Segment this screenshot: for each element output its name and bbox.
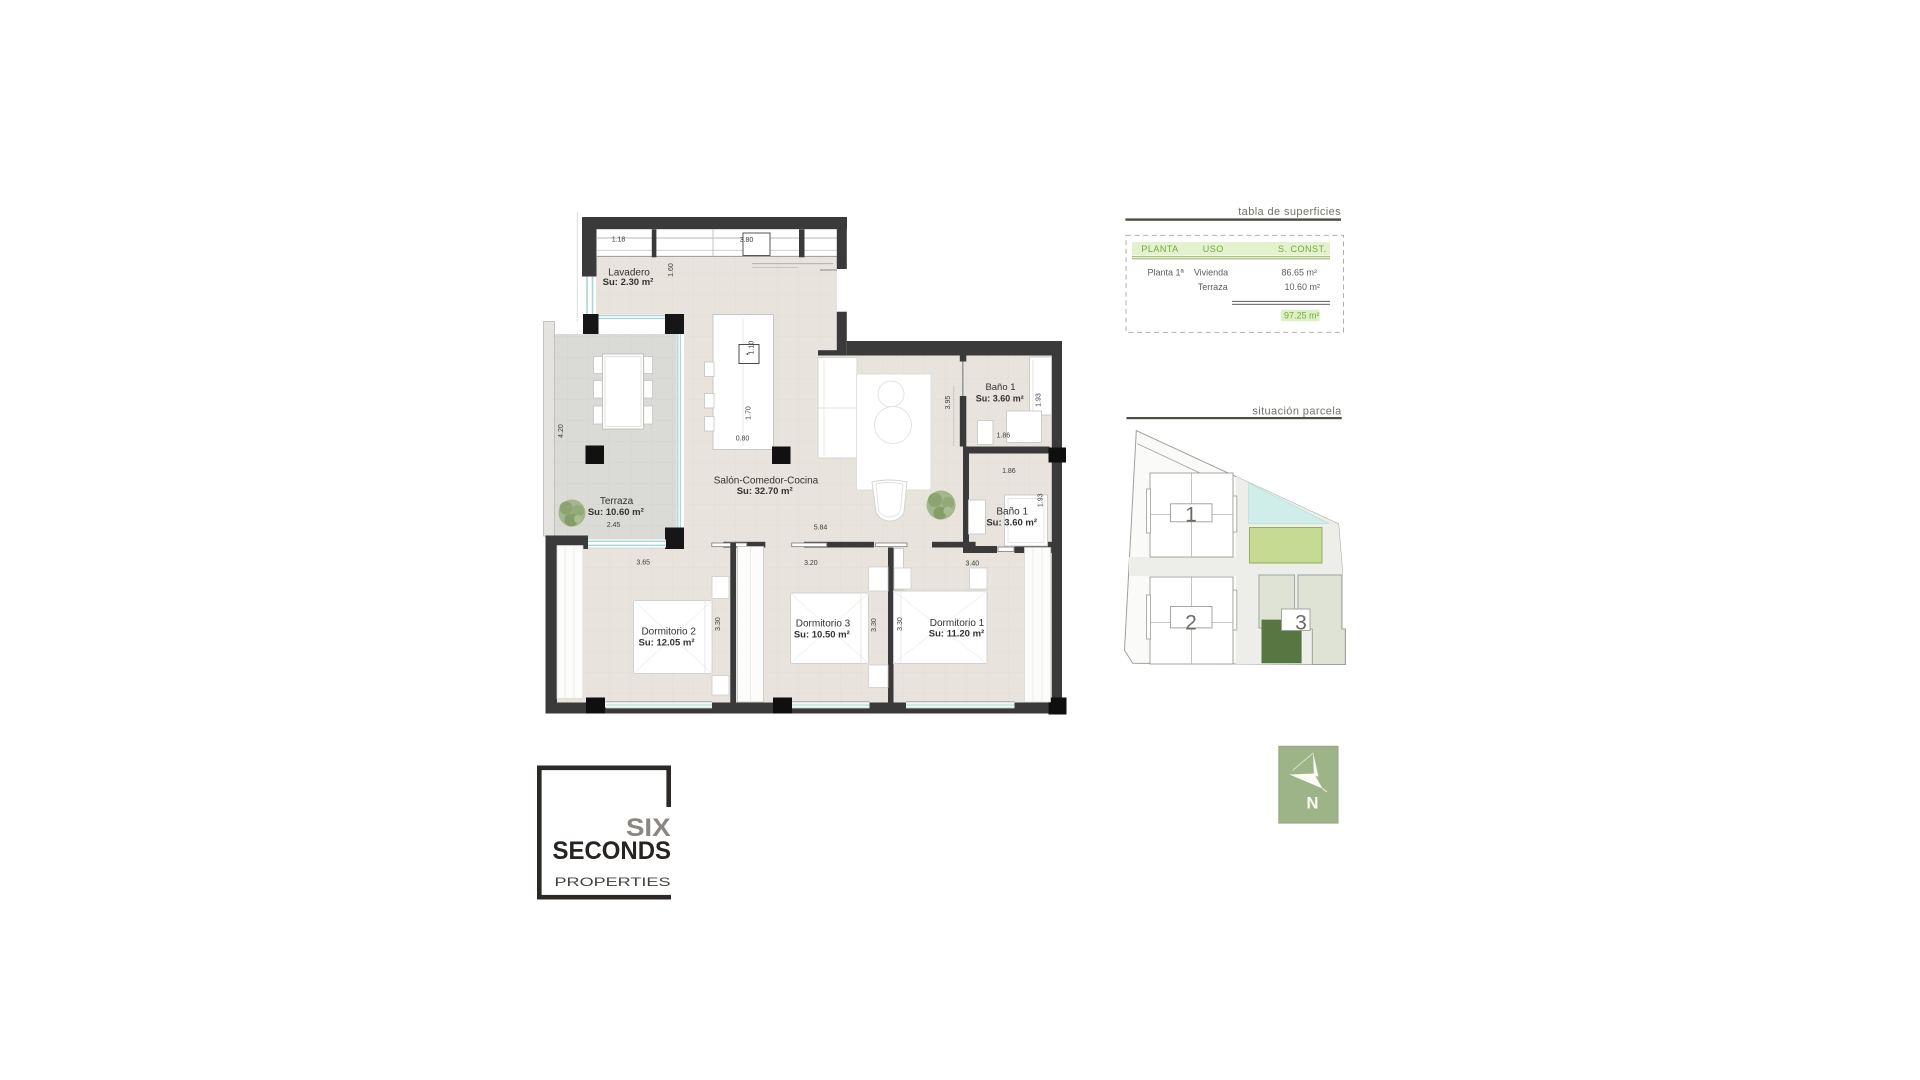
- svg-text:Vivienda: Vivienda: [1194, 268, 1228, 278]
- svg-text:Baño 1: Baño 1: [985, 382, 1015, 393]
- svg-text:3.30: 3.30: [715, 617, 722, 631]
- svg-text:Terraza: Terraza: [600, 496, 634, 507]
- svg-text:Su: 3.60 m²: Su: 3.60 m²: [976, 394, 1024, 404]
- svg-text:Baño 1: Baño 1: [996, 507, 1028, 518]
- svg-text:1.93: 1.93: [1035, 393, 1042, 407]
- svg-text:3.65: 3.65: [636, 559, 650, 566]
- svg-text:97.25 m²: 97.25 m²: [1284, 311, 1320, 321]
- svg-text:5.84: 5.84: [814, 524, 828, 531]
- svg-text:Su: 10.50 m²: Su: 10.50 m²: [794, 629, 850, 640]
- svg-text:Planta 1ª: Planta 1ª: [1148, 268, 1185, 278]
- svg-text:3.30: 3.30: [897, 617, 904, 631]
- svg-text:3.40: 3.40: [965, 561, 979, 568]
- svg-text:3: 3: [1295, 612, 1307, 635]
- svg-text:SECONDS: SECONDS: [553, 837, 672, 865]
- svg-text:Dormitorio 2: Dormitorio 2: [641, 627, 696, 638]
- svg-text:2.45: 2.45: [607, 522, 621, 529]
- svg-text:1.93: 1.93: [1037, 493, 1044, 507]
- svg-text:10.60 m²: 10.60 m²: [1284, 282, 1320, 292]
- svg-text:Su: 32.70 m²: Su: 32.70 m²: [737, 486, 793, 497]
- svg-text:1.86: 1.86: [997, 432, 1011, 439]
- svg-text:3.30: 3.30: [871, 618, 878, 632]
- svg-text:86.65 m²: 86.65 m²: [1281, 268, 1317, 278]
- svg-text:N: N: [1307, 795, 1319, 813]
- svg-text:3.20: 3.20: [804, 560, 818, 567]
- svg-text:Terraza: Terraza: [1198, 282, 1228, 292]
- svg-text:Su: 12.05 m²: Su: 12.05 m²: [639, 638, 695, 649]
- svg-text:PLANTA: PLANTA: [1141, 244, 1178, 254]
- svg-text:situación parcela: situación parcela: [1252, 405, 1342, 417]
- svg-text:4.20: 4.20: [558, 424, 565, 438]
- svg-text:USO: USO: [1203, 244, 1224, 254]
- svg-text:Su: 11.20 m²: Su: 11.20 m²: [929, 628, 984, 639]
- svg-text:Dormitorio 1: Dormitorio 1: [930, 618, 985, 629]
- svg-text:3.95: 3.95: [945, 396, 952, 410]
- svg-text:tabla de superficies: tabla de superficies: [1238, 206, 1341, 218]
- svg-text:0.80: 0.80: [736, 435, 750, 442]
- svg-text:1.70: 1.70: [746, 406, 753, 420]
- svg-text:Dormitorio 3: Dormitorio 3: [796, 619, 851, 630]
- svg-text:PROPERTIES: PROPERTIES: [555, 875, 671, 889]
- svg-text:1.18: 1.18: [612, 236, 626, 243]
- svg-text:Su: 10.60 m²: Su: 10.60 m²: [588, 507, 644, 518]
- svg-text:Su: 2.30 m²: Su: 2.30 m²: [603, 277, 654, 288]
- svg-text:S. CONST.: S. CONST.: [1278, 244, 1327, 254]
- svg-text:2: 2: [1185, 612, 1197, 635]
- svg-text:1: 1: [1185, 504, 1197, 527]
- svg-text:1.60: 1.60: [668, 263, 675, 277]
- svg-text:3.80: 3.80: [740, 237, 754, 244]
- svg-text:1.86: 1.86: [1002, 468, 1016, 475]
- svg-text:Su: 3.60 m²: Su: 3.60 m²: [986, 518, 1037, 529]
- svg-text:1.10: 1.10: [749, 341, 756, 355]
